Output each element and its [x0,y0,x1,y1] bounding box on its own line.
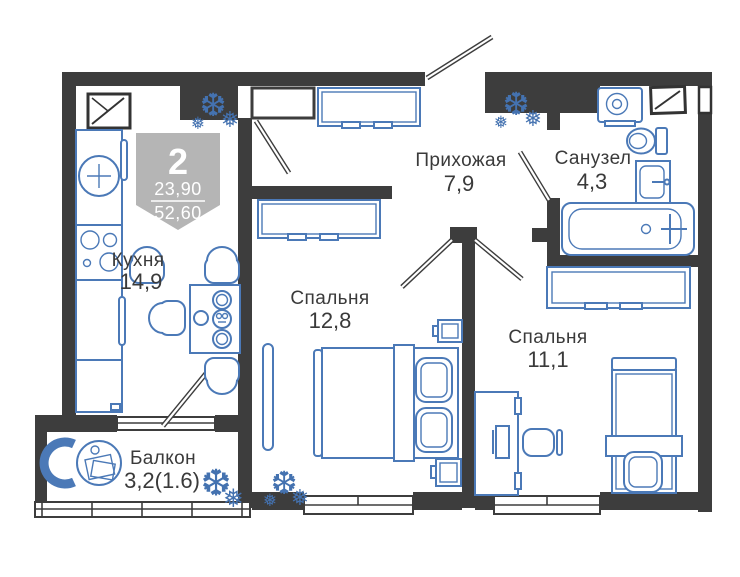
desk-icon [475,392,521,495]
dining-table-icon [190,285,240,353]
svg-text:Кухня: Кухня [112,250,165,271]
nightstand-icon-bottom [431,459,461,486]
wall-niche [699,87,711,113]
svg-text:Спальня: Спальня [290,288,369,309]
double-bed-icon [314,345,458,461]
svg-text:Прихожая: Прихожая [415,150,506,171]
floor-plan: ❆ ❅ ❅ ❆ ❅ ❅ ❆ ❅ ❆ ❅ ❅ 2 23,90 52,60 Кухн… [0,0,740,577]
bedroom-2-closet-icon [547,267,690,309]
vent-shaft-icon-bathroom [651,86,686,113]
bathroom-door-swing [520,152,549,200]
room-label-hallway: Прихожая 7,9 [415,150,506,196]
nightstand-icon-top [433,320,462,342]
toilet-icon [627,128,667,154]
svg-text:12,8: 12,8 [309,308,352,333]
bedroom-2-door-swing [475,240,522,279]
svg-text:4,3: 4,3 [577,169,608,194]
entrance-door-swing [427,37,492,78]
badge-living-area: 23,90 [154,179,202,199]
bedroom-1-door-swing [402,240,452,287]
svg-text:11,1: 11,1 [527,347,568,372]
room-label-bathroom: Санузел 4,3 [555,148,632,194]
balcony-table-icon [77,441,121,485]
svg-text:Спальня: Спальня [508,327,587,348]
svg-text:❅: ❅ [221,108,239,133]
bathtub-icon [562,203,694,255]
svg-text:3,2(1.6): 3,2(1.6) [124,468,200,493]
badge-total-area: 52,60 [154,203,202,223]
apartment-badge: 2 23,90 52,60 [136,133,220,230]
kitchen-sink-icon [79,156,119,196]
svg-text:❅: ❅ [263,491,277,511]
svg-text:❅: ❅ [524,107,542,132]
svg-text:7,9: 7,9 [444,171,475,196]
svg-text:❅: ❅ [291,486,309,511]
single-bed-icon [606,358,682,493]
svg-text:Балкон: Балкон [130,448,196,469]
svg-text:❅: ❅ [191,114,205,134]
window-bedroom-2 [494,496,600,514]
kitchen-door [252,88,314,173]
desk-chair-icon [523,429,562,456]
svg-text:❅: ❅ [223,484,244,513]
room-label-bedroom-2: Спальня 11,1 [508,327,587,372]
room-label-bedroom-1: Спальня 12,8 [290,288,369,333]
room-label-balcony: Балкон 3,2(1.6) [124,448,200,493]
room-label-kitchen: Кухня 14,9 [112,250,165,294]
kitchen-cabinet [76,360,122,412]
bedroom-1-closet-icon [258,200,380,240]
washing-machine-icon [598,88,642,126]
hallway-wardrobe-icon [318,88,420,128]
svg-text:❅: ❅ [494,113,508,133]
svg-text:Санузел: Санузел [555,148,632,169]
bedroom-1-dresser [263,344,273,450]
bathroom-sink-icon [636,161,670,203]
window-bedroom-1 [304,496,413,514]
balcony-chair-icon [44,442,74,484]
badge-rooms-count: 2 [168,141,188,182]
svg-text:14,9: 14,9 [120,269,163,294]
floor-plan-canvas: ❆ ❅ ❅ ❆ ❅ ❅ ❆ ❅ ❆ ❅ ❅ 2 23,90 52,60 Кухн… [0,0,740,577]
vent-shaft-icon [88,94,130,128]
fridge-icon [76,280,125,360]
